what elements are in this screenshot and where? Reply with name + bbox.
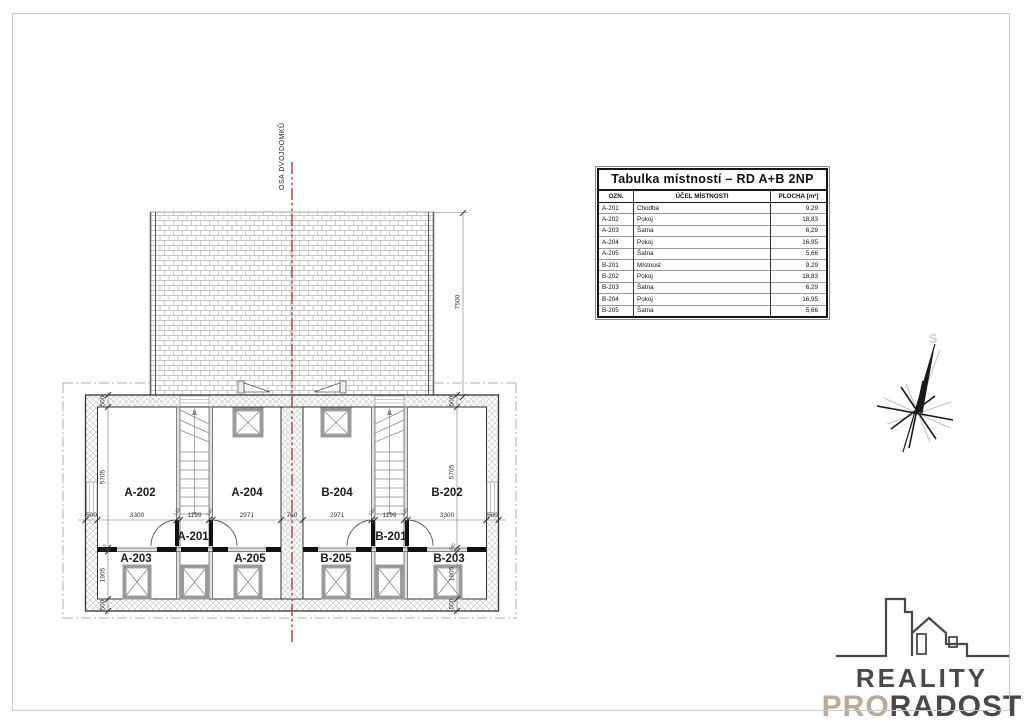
- table-row: A-205Šatna5,66: [599, 248, 826, 259]
- table-row: B-204Pokoj16,95: [599, 294, 826, 305]
- table-row: A-201Chodba9,29: [599, 203, 826, 214]
- table-row: B-205Šatna5,66: [599, 305, 826, 316]
- table-row: A-203Šatna6,29: [599, 225, 826, 236]
- table-row: B-203Šatna6,29: [599, 282, 826, 293]
- col-plocha: PLOCHA [m²]: [771, 191, 827, 203]
- table-row: B-201Místnost9,29: [599, 259, 826, 270]
- table-row: A-204Pokoj16,95: [599, 237, 826, 248]
- col-ozn: OZN.: [599, 191, 634, 203]
- drawing-sheet: 500 3300 1199 2971 760 2971 1199 3300 50…: [0, 0, 1024, 723]
- sheet-border: [12, 13, 1010, 711]
- table-row: B-202Pokoj18,83: [599, 271, 826, 282]
- table-row: A-202Pokoj18,83: [599, 214, 826, 225]
- col-ucel: ÚČEL MÍSTNOSTI: [634, 191, 771, 203]
- rooms-table: Tabulka místností – RD A+B 2NP OZN. ÚČEL…: [597, 168, 828, 318]
- table-header-row: OZN. ÚČEL MÍSTNOSTI PLOCHA [m²]: [599, 191, 826, 203]
- rooms-table-title: Tabulka místností – RD A+B 2NP: [599, 170, 826, 191]
